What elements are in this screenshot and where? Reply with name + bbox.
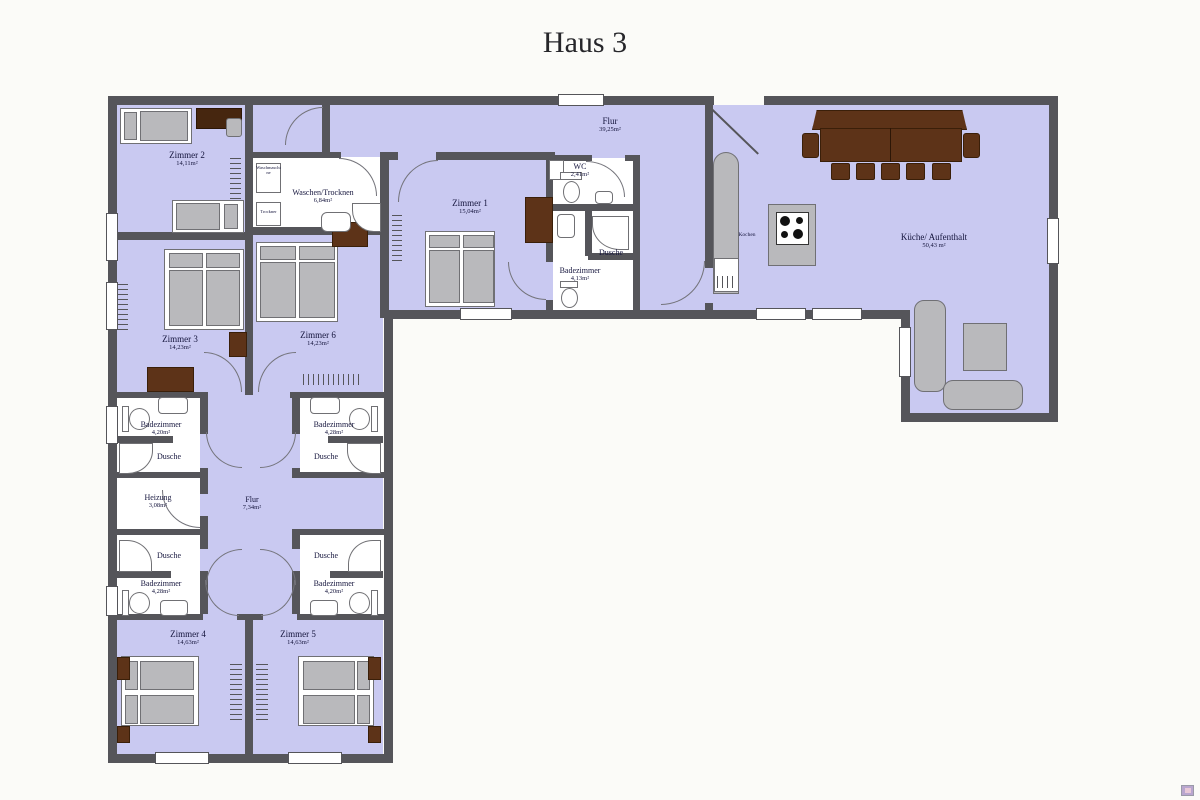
burner — [793, 229, 803, 239]
label-wc: WC 2,41m² — [560, 162, 600, 178]
bed-mattress — [169, 270, 203, 326]
dryer-label: Trockner — [256, 210, 281, 215]
bed-pillow — [206, 253, 240, 268]
wall-heizung-east-a — [200, 478, 208, 494]
wardrobe-zimmer4-b — [117, 726, 130, 743]
bed-mattress — [303, 661, 355, 690]
page-title: Haus 3 — [0, 26, 1170, 60]
toilet-bowl-wc — [563, 181, 580, 203]
window-left-2 — [106, 282, 118, 330]
label-dusche-mitte: Dusche — [588, 248, 634, 257]
window-left-3 — [106, 406, 118, 444]
sofa-horizontal — [943, 380, 1023, 410]
wall-zimmer1-north-a — [384, 152, 398, 160]
bed-mattress — [140, 111, 188, 141]
label-flur-mitte: Flur 7,34m² — [222, 495, 282, 511]
bed-pillow — [429, 235, 460, 248]
label-zimmer4: Zimmer 4 14,63m² — [148, 629, 228, 646]
label-dusche-ur: Dusche — [303, 551, 349, 560]
window-left-1 — [106, 213, 118, 261]
wall-divider-lower — [245, 620, 253, 760]
label-dusche-ol: Dusche — [146, 452, 192, 461]
bed-pillow — [125, 695, 138, 724]
label-zimmer1: Zimmer 1 15,04m² — [430, 198, 510, 215]
label-zimmer5: Zimmer 5 14,63m² — [258, 629, 338, 646]
wardrobe-zimmer4-a — [117, 657, 130, 680]
wall-z4z5-north-mid — [237, 614, 263, 620]
bed-pillow — [124, 112, 137, 140]
wall-wc-north-b — [625, 155, 633, 161]
coffee-table — [963, 323, 1007, 371]
label-bad-or: Badezimmer 4,28m² — [298, 420, 370, 436]
sink-bad-or — [310, 397, 340, 414]
bed-pillow — [260, 246, 296, 260]
chair — [856, 163, 875, 180]
chair — [906, 163, 925, 180]
wall-kitchen-west-stub — [705, 303, 713, 310]
toilet-bowl-bad-mitte — [561, 288, 578, 308]
radiator-zimmer1 — [392, 215, 402, 261]
chair — [881, 163, 900, 180]
label-heizung: Heizung 3,08m² — [127, 493, 189, 509]
wall-bad-ol-east-a — [200, 398, 208, 434]
burner — [781, 231, 788, 238]
sideboard — [812, 110, 967, 130]
wall-bad-or-stub — [328, 436, 383, 443]
label-kochen: Kochen — [733, 233, 761, 239]
bed-pillow — [169, 253, 203, 268]
wall-bad-ur-stub — [330, 571, 383, 578]
bed-mattress — [140, 695, 194, 724]
label-zimmer6: Zimmer 6 14,23m² — [278, 330, 358, 347]
radiator-zimmer5 — [256, 664, 268, 720]
chair — [831, 163, 850, 180]
label-bad-ur: Badezimmer 4,20m² — [298, 579, 370, 595]
sink-wc — [595, 191, 613, 204]
label-zimmer3: Zimmer 3 14,23m² — [140, 334, 220, 351]
window-bottom-z4 — [155, 752, 209, 764]
wall-wc-south — [546, 204, 633, 211]
chair — [802, 133, 819, 158]
radiator-zimmer6 — [303, 374, 359, 385]
watermark-icon — [1181, 785, 1194, 796]
wall-outer-top-right — [764, 96, 1058, 105]
burner — [796, 217, 803, 224]
wall-zimmer4-north — [117, 614, 203, 620]
burner — [780, 216, 790, 226]
dining-table — [820, 128, 962, 162]
label-bad-ol: Badezimmer 4,20m² — [125, 420, 197, 436]
bed-mattress — [140, 661, 194, 690]
window-band-kueche-2 — [812, 308, 862, 320]
window-right — [1047, 218, 1059, 264]
nightstand-zimmer2 — [226, 118, 242, 137]
sink-bad-ur — [310, 600, 338, 616]
window-band-kueche-1 — [756, 308, 806, 320]
wall-bad-ul-east-a — [200, 535, 208, 549]
window-bottom-z5 — [288, 752, 342, 764]
chair — [932, 163, 951, 180]
wall-zimmer1-north-b — [436, 152, 555, 160]
radiator-zimmer3 — [118, 282, 128, 330]
label-dusche-ul: Dusche — [146, 551, 192, 560]
wall-zimmer2-south — [117, 232, 253, 240]
bed-mattress — [303, 695, 355, 724]
wardrobe-zimmer5-b — [368, 726, 381, 743]
fridge-vent-lines — [717, 276, 736, 288]
sink-bad-ol — [158, 397, 188, 414]
wall-bad-ur-north — [292, 529, 384, 535]
floor-plan: Haus 3 — [0, 0, 1200, 800]
radiator-zimmer4 — [230, 664, 242, 720]
bed-mattress — [429, 250, 460, 303]
sink-waschen — [321, 212, 351, 232]
washing-machine-label: Waschmaschine — [256, 166, 281, 176]
dining-table-divider — [890, 128, 891, 162]
label-flur-top: Flur 39,25m² — [575, 116, 645, 133]
wall-left-wing-east — [384, 310, 393, 763]
wall-outer-bottom-right — [901, 413, 1058, 422]
wall-wc-west-stub — [546, 300, 553, 310]
bed-mattress — [260, 262, 296, 318]
label-kueche: Küche/ Aufenthalt 50,43 m² — [882, 232, 986, 249]
bed-pillow — [299, 246, 335, 260]
window-nook — [899, 327, 911, 377]
label-waschen: Waschen/Trocknen 6,84m² — [268, 188, 378, 204]
label-zimmer2: Zimmer 2 14,11m² — [147, 150, 227, 167]
sofa-vertical — [914, 300, 946, 392]
bed-mattress — [463, 250, 494, 303]
watermark-inner — [1185, 788, 1191, 793]
sink-bad-ul — [160, 600, 188, 616]
window-top-wc — [558, 94, 604, 106]
label-bad-ul: Badezimmer 4,28m² — [125, 579, 197, 595]
wall-zimmer1-west — [380, 152, 389, 318]
bed-pillow — [357, 695, 370, 724]
label-dusche-or: Dusche — [303, 452, 349, 461]
window-left-4 — [106, 586, 118, 616]
sink-bad-mitte — [557, 214, 575, 238]
wall-anteroom-east — [322, 105, 330, 155]
dresser-zimmer3 — [229, 332, 247, 357]
chair — [963, 133, 980, 158]
wall-cluster-east — [633, 155, 640, 310]
wardrobe-zimmer5-a — [368, 657, 381, 680]
bed-pillow — [224, 204, 238, 229]
bed-mattress — [176, 203, 220, 230]
toilet-tank-bad-or — [371, 406, 378, 432]
bed-mattress — [206, 270, 240, 326]
radiator-zimmer2 — [230, 155, 241, 199]
wardrobe-zimmer1 — [525, 197, 553, 243]
wall-bad-ul-stub — [117, 571, 171, 578]
wall-outer-top-left — [108, 96, 714, 105]
wall-heizung-south — [117, 529, 208, 535]
toilet-tank-bad-ur — [371, 590, 378, 616]
label-bad-mitte: Badezimmer 4,13m² — [548, 266, 612, 282]
wall-kitchen-west — [705, 105, 713, 268]
wardrobe-zimmer3 — [147, 367, 194, 392]
wall-bad-ur-west-a — [292, 535, 300, 549]
bed-mattress — [299, 262, 335, 318]
bed-pillow — [463, 235, 494, 248]
window-band-z1 — [460, 308, 512, 320]
wall-bad-ol-stub — [117, 436, 173, 443]
